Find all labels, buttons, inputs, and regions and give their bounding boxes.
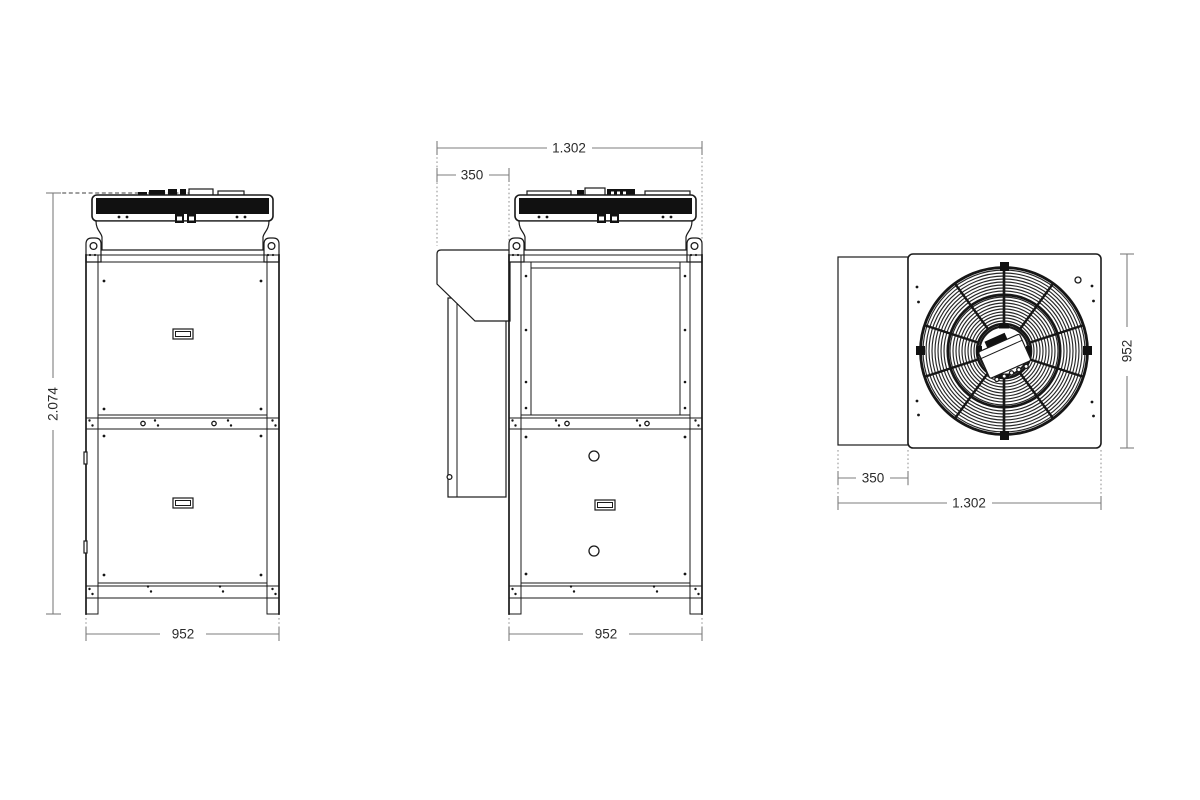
front-height-dimension: 2.074	[46, 193, 191, 614]
dimension-drawing: 2.074	[0, 0, 1200, 800]
side-view: 1.302 350	[437, 141, 702, 642]
side-hood-depth-dimension: 350	[437, 168, 509, 247]
top-total-depth-dim-label: 1.302	[952, 496, 986, 511]
top-width-dimension: 952	[1120, 254, 1135, 448]
side-cabinet	[509, 250, 702, 614]
side-width-dim-label: 952	[595, 627, 618, 642]
front-view: 2.074	[46, 189, 280, 642]
front-cabinet	[84, 250, 279, 614]
top-screw-hole	[1075, 277, 1081, 283]
side-duct	[447, 298, 506, 497]
side-hood-depth-dim-label: 350	[461, 168, 484, 183]
top-duct-outline	[838, 257, 908, 445]
side-total-depth-dim-label: 1.302	[552, 141, 586, 156]
front-width-dim-label: 952	[172, 627, 195, 642]
front-upper-panel-handle	[173, 329, 193, 339]
top-width-dim-label: 952	[1120, 340, 1135, 363]
front-lower-panel-handle	[173, 498, 193, 508]
top-hood-depth-dimension: 350	[838, 450, 908, 508]
front-width-dimension: 952	[86, 618, 279, 642]
side-width-dimension: 952	[509, 618, 702, 642]
side-panel-handle	[595, 500, 615, 510]
top-view: 952 350 1.302	[838, 254, 1135, 511]
front-height-dim-label: 2.074	[46, 387, 61, 421]
top-hood-depth-dim-label: 350	[862, 471, 885, 486]
technical-drawing-canvas: 2.074	[0, 0, 1200, 800]
